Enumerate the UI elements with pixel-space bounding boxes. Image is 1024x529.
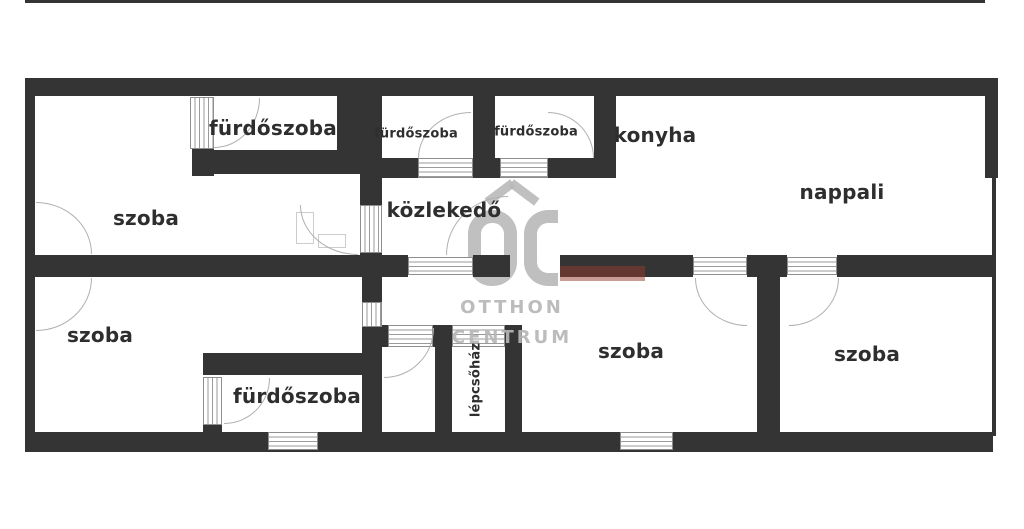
room-label-room-bottom-middle: szoba [598,339,664,363]
floorplan-canvas: OC OTTHON CENTRUM fürdőszoba fürdőszoba … [0,0,1024,529]
door-swing-arc [300,205,358,255]
watermark-letter-c-icon [524,210,558,286]
wall-segment [747,255,787,277]
window-symbol [787,257,837,275]
wall-segment [433,325,452,347]
wall-segment [203,353,363,375]
wall-segment [382,158,420,178]
watermark-brand-initials: OC [0,0,1,1]
window-symbol [418,158,473,178]
window-symbol [500,158,548,178]
room-label-room-bottom-right: szoba [834,342,900,366]
watermark-roof-right-icon [509,179,540,205]
room-label-bathroom-mid-left: fürdőszoba [374,127,458,142]
wall-segment [337,96,360,174]
window-symbol [693,257,747,275]
door-swing-arc [695,278,747,326]
room-label-bathroom-top-left: fürdőszoba [209,116,337,140]
wall-segment [473,96,495,178]
room-label-room-bottom-left: szoba [67,323,133,347]
door-symbol [203,377,222,425]
wall-segment [203,425,222,432]
door-swing-arc [789,278,839,326]
wall-segment [548,158,616,178]
window-symbol [268,432,318,450]
wall-segment [473,255,510,277]
wall-segment [985,78,998,178]
wall-segment [192,150,345,174]
wall-segment [25,78,35,452]
wall-segment [382,255,408,277]
wall-segment [435,347,452,432]
watermark-line1: OTTHON [460,297,564,318]
door-symbol [360,205,382,253]
room-label-bathroom-mid-right: fürdőszoba [494,125,578,140]
wall-segment [992,178,996,436]
room-label-kitchen: konyha [614,123,697,147]
wall-segment [360,251,382,277]
room-label-hallway: közlekedő [387,198,502,222]
door-swing-arc [384,328,434,378]
wall-segment [757,277,780,432]
wall-segment [25,432,993,452]
wall-segment [362,277,382,302]
wall-segment [362,325,382,432]
room-label-bathroom-bottom: fürdőszoba [233,384,361,408]
window-symbol [620,432,673,450]
window-symbol [408,257,473,275]
door-symbol [362,302,382,327]
room-label-stairwell: lépcsőház [469,343,484,417]
room-label-room-top-left: szoba [113,206,179,230]
wall-segment [25,0,985,3]
wall-segment [25,78,993,96]
wall-segment [837,255,993,277]
wall-segment [360,96,382,207]
room-label-living-room: nappali [800,180,885,204]
door-swing-arc [36,202,92,254]
wall-artifact-tint [560,266,645,281]
wall-segment [35,255,360,277]
